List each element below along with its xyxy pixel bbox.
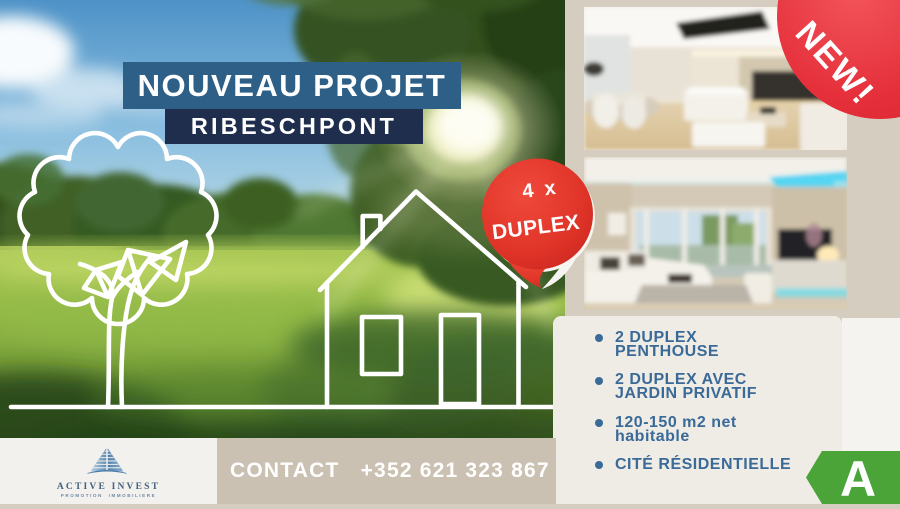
svg-text:4 x: 4 x	[521, 177, 557, 203]
svg-text:A: A	[840, 451, 876, 504]
